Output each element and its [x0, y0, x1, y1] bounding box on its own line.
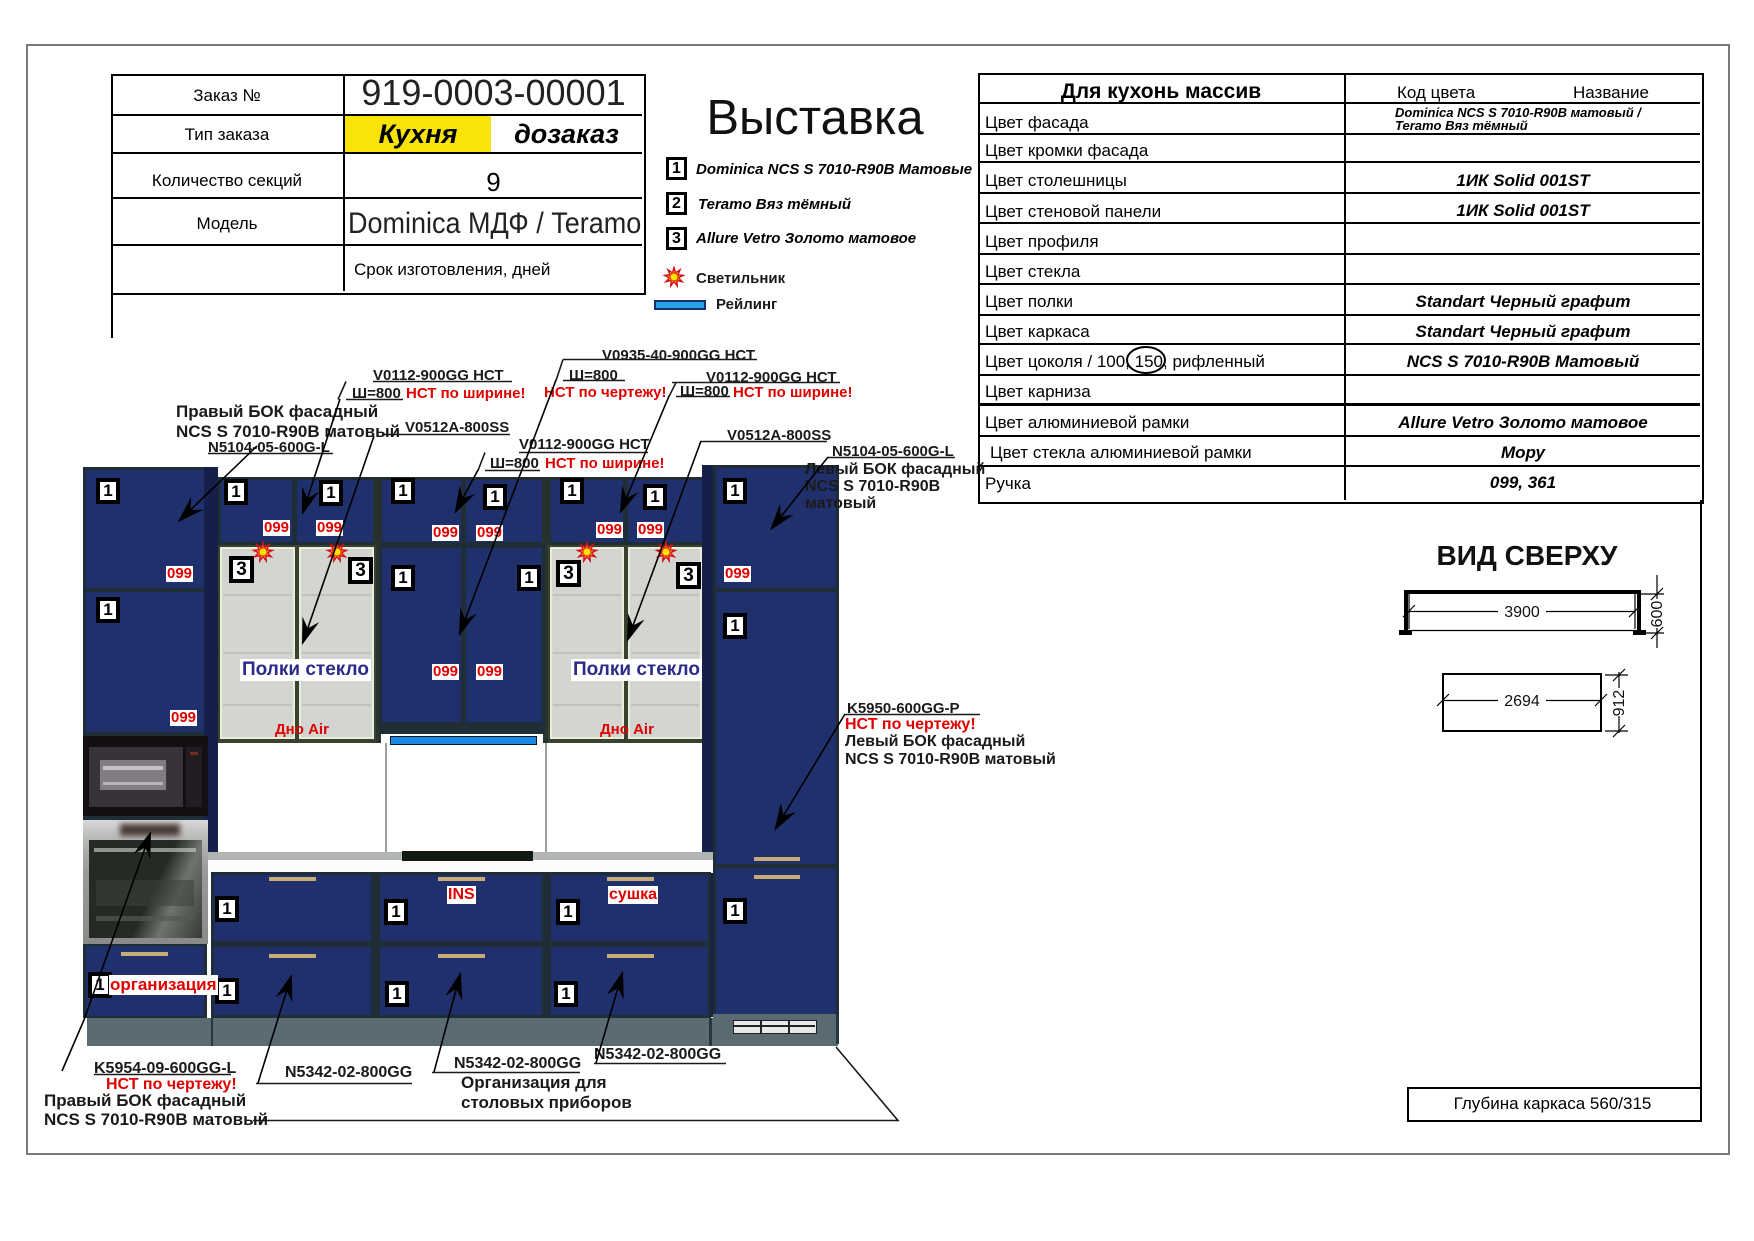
svg-text:3900: 3900 — [1504, 604, 1540, 621]
svg-text:912: 912 — [1611, 690, 1628, 717]
svg-text:2694: 2694 — [1504, 693, 1540, 710]
svg-text:600: 600 — [1649, 601, 1666, 628]
